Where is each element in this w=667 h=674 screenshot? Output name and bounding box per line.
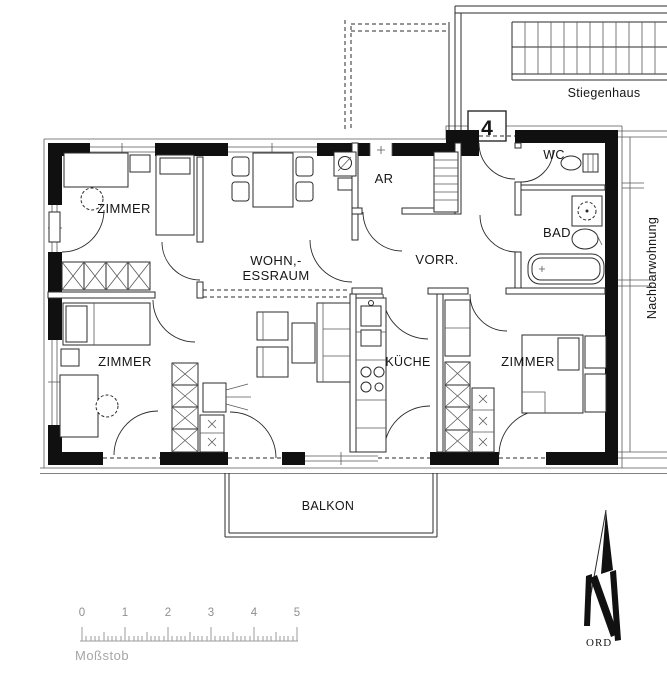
room-label-zimmer-top-left: ZIMMER: [97, 201, 151, 216]
room-label-kueche: KÜCHE: [385, 355, 430, 369]
floorplan-page: Stiegenhaus 4: [0, 0, 667, 674]
scale-tick-0: 0: [79, 607, 85, 619]
furniture-zimmer-bottom-right: [445, 300, 606, 452]
fixtures-ar: [434, 152, 458, 212]
room-label-vorr: VORR.: [415, 252, 458, 267]
scale-bar: 0 1 2 3 4 5 Moßstob: [75, 607, 300, 663]
scale-tick-5: 5: [294, 607, 300, 619]
room-label-wohn: WOHN,-: [250, 253, 302, 268]
room-label-ar: AR: [375, 171, 394, 186]
north-label: ORD: [586, 637, 612, 649]
fixtures-wc: [561, 154, 598, 172]
fixtures-bad: [528, 196, 604, 284]
scale-tick-3: 3: [208, 607, 214, 619]
room-label-wc: WC: [543, 148, 564, 162]
furniture-zimmer-bottom-left: [60, 303, 224, 452]
furniture-kueche: [356, 298, 386, 452]
neighbor-apartment-lines: Nachbarwohnung: [618, 131, 667, 458]
room-label-balkon: BALKON: [302, 499, 355, 513]
scale-tick-1: 1: [122, 607, 128, 619]
unit-number: 4: [481, 117, 493, 140]
room-label-zimmer-bottom-left: ZIMMER: [98, 354, 152, 369]
floorplan-drawing: Stiegenhaus 4: [0, 0, 667, 674]
north-arrow: ORD: [584, 510, 621, 649]
scale-tick-4: 4: [251, 607, 258, 619]
interior-walls: [48, 143, 605, 452]
scale-tick-2: 2: [165, 607, 171, 619]
scale-label: Moßstob: [75, 648, 129, 663]
neighbor-apartment-label: Nachbarwohnung: [645, 217, 659, 319]
room-label-essraum: ESSRAUM: [242, 268, 309, 283]
room-label-zimmer-bottom-right: ZIMMER: [501, 354, 555, 369]
room-label-bad: BAD: [543, 225, 571, 240]
stairwell-label: Stiegenhaus: [568, 86, 641, 100]
